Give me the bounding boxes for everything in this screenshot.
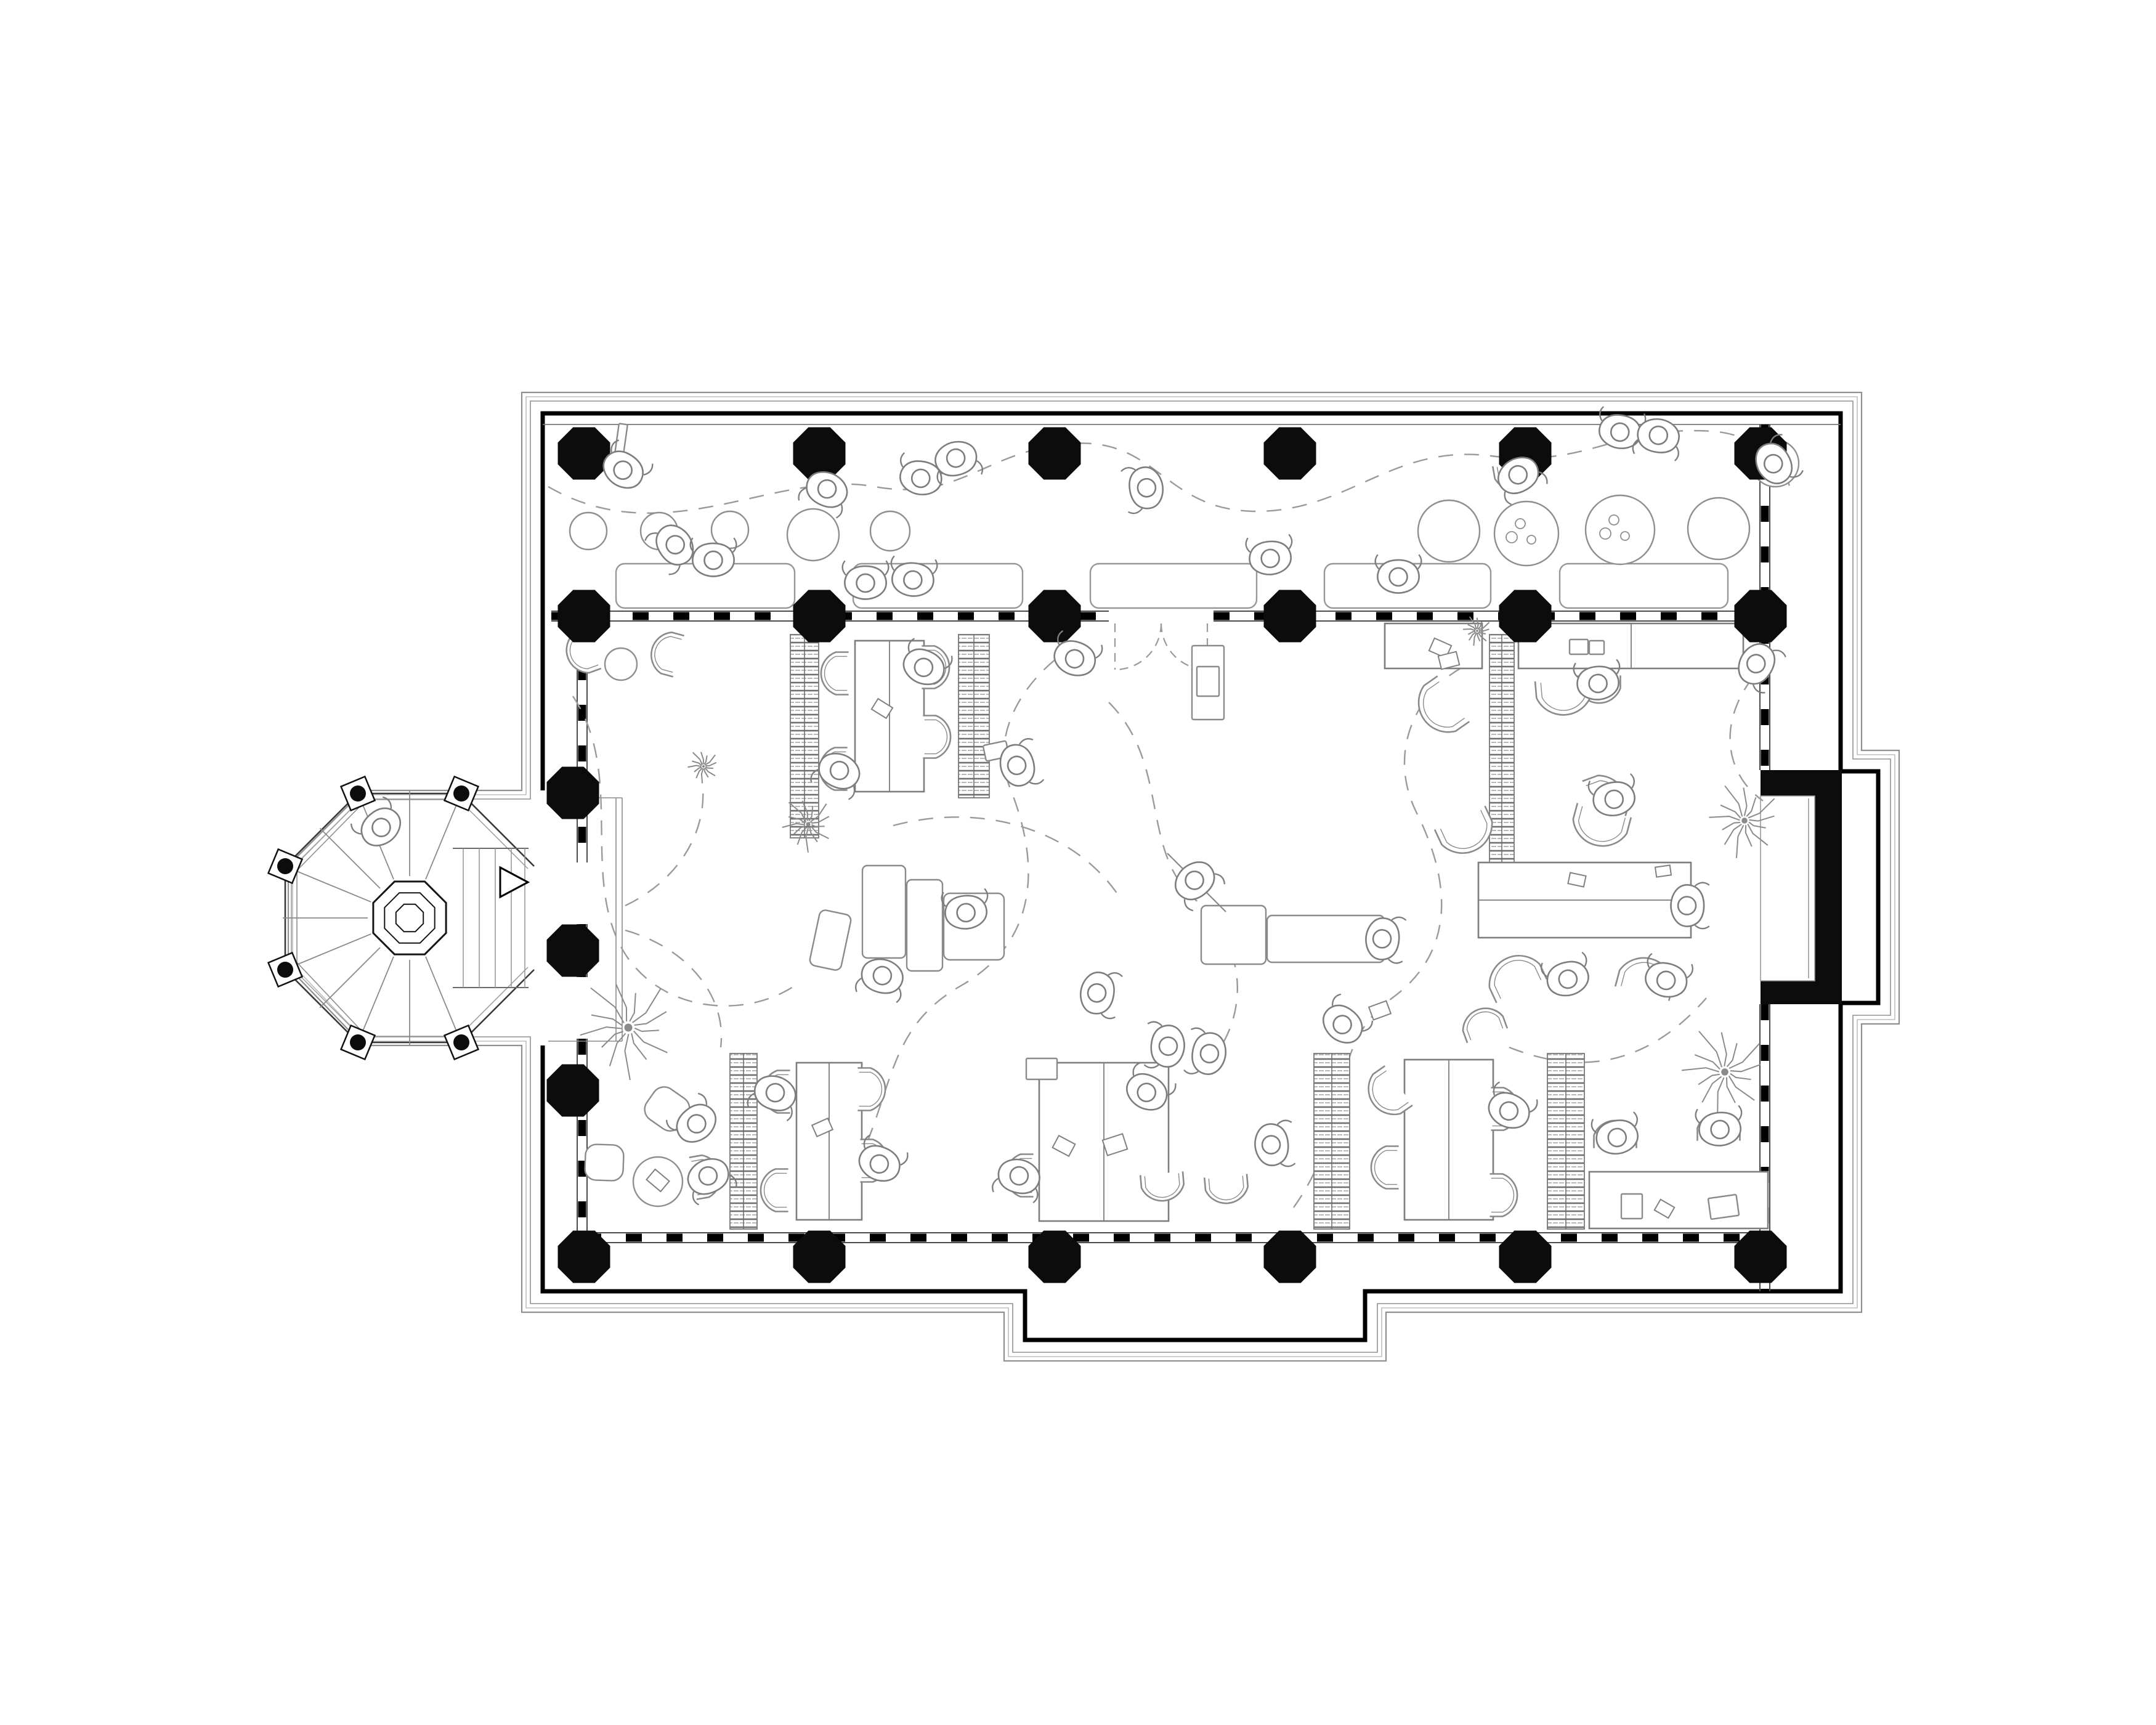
chair-shell [761, 1169, 788, 1212]
furniture [1201, 906, 1266, 964]
person-arm [899, 452, 905, 467]
chair [761, 1169, 788, 1212]
desk [1518, 623, 1743, 668]
stool-outline [787, 509, 839, 561]
person-arm [843, 561, 846, 575]
structural-column [793, 1231, 846, 1283]
person-arm [1530, 1099, 1539, 1113]
chair-shell [1371, 1147, 1399, 1189]
stool-outline [1688, 498, 1749, 559]
person-arm [1183, 1069, 1198, 1074]
structural-column [793, 590, 846, 643]
desk [1404, 1060, 1493, 1220]
plant-center [1721, 1068, 1728, 1076]
stair-tread [426, 957, 458, 1035]
circulation-path [625, 782, 703, 906]
coffee-table [1586, 495, 1655, 564]
plant-center [1476, 630, 1478, 632]
stair-tread [293, 934, 371, 967]
plant-leaf [1743, 788, 1746, 816]
person-arm [1101, 1013, 1116, 1019]
furniture [809, 909, 852, 972]
plant-leaf [1682, 1068, 1719, 1071]
person-arm [1738, 1105, 1742, 1120]
person-figure [854, 954, 909, 1004]
plant-leaf [1722, 822, 1740, 830]
chair [1371, 1147, 1399, 1189]
furniture [1570, 639, 1588, 654]
person-head [956, 903, 975, 922]
chair-shell [1489, 1174, 1517, 1217]
stair-tread [361, 957, 394, 1035]
structural-column [547, 925, 599, 977]
person-figure [1183, 1027, 1229, 1079]
person-arm [1019, 737, 1034, 744]
stool [570, 513, 607, 550]
furniture [585, 1144, 624, 1181]
stool [870, 511, 910, 551]
stool [787, 509, 839, 561]
person-arm [1121, 466, 1135, 472]
stool-outline [605, 648, 637, 680]
structural-column [1735, 590, 1787, 643]
furniture [1708, 1195, 1739, 1219]
person-figure [1376, 554, 1422, 593]
person-arm [1695, 925, 1709, 928]
coffee-table [1494, 501, 1558, 566]
structural-column [547, 1065, 599, 1117]
stool [1418, 500, 1480, 562]
lounge-chair [1408, 676, 1469, 742]
desk [796, 1063, 862, 1220]
structural-column [1029, 1231, 1081, 1283]
person-arm [1539, 470, 1549, 484]
plant-center [625, 1024, 633, 1032]
stool-outline [570, 513, 607, 550]
structural-column [1029, 428, 1081, 480]
person-arm [1330, 992, 1342, 1005]
person-head [1390, 568, 1408, 586]
stool-outline [1418, 500, 1480, 562]
furniture [862, 866, 906, 958]
plant-leaf [1725, 786, 1742, 817]
structural-column [1029, 590, 1081, 643]
person-arm [1128, 508, 1143, 514]
person-arm [349, 823, 361, 836]
person-arm [697, 1092, 709, 1105]
person-arm [1096, 644, 1104, 659]
person-arm [1632, 1111, 1638, 1126]
chair [821, 652, 849, 695]
furniture [1026, 1058, 1057, 1079]
plant [580, 984, 668, 1080]
structural-column [547, 767, 599, 819]
chair-shell [1481, 947, 1547, 1003]
structural-column [1264, 1231, 1316, 1283]
plant-center [1741, 818, 1748, 824]
person-figure [1253, 1120, 1295, 1169]
person-head [1710, 1120, 1729, 1139]
plant-leaf [704, 755, 707, 764]
desk-item [1369, 1001, 1391, 1020]
person-arm [1288, 534, 1292, 549]
person-figure [1671, 883, 1709, 929]
person-head [1262, 1135, 1281, 1154]
person-head [1159, 1036, 1178, 1055]
person-arm [1191, 1027, 1206, 1033]
plant-leaf [634, 1028, 659, 1031]
person-arm [1695, 883, 1709, 886]
plant-leaf [702, 768, 703, 783]
person-figure [1121, 462, 1166, 514]
chair-shell [647, 628, 684, 676]
plant-leaf [1698, 1074, 1720, 1085]
person-figure [930, 437, 984, 486]
person-figure [1591, 1111, 1642, 1157]
person-figure [1632, 415, 1684, 461]
stool [1688, 498, 1749, 559]
stool-outline [1586, 495, 1655, 564]
circulation-path [1509, 998, 1706, 1062]
circulation-path [573, 696, 795, 1006]
person-arm [1392, 917, 1406, 921]
person-figure [1077, 967, 1122, 1019]
person-figure [1695, 1105, 1745, 1148]
person-arm [1695, 1109, 1700, 1124]
plant-leaf [1727, 1043, 1737, 1066]
plant-leaf [1722, 1033, 1727, 1066]
person-arm [991, 1178, 998, 1193]
desk-item [1655, 865, 1671, 877]
structural-column [1264, 428, 1316, 480]
structural-column [1499, 590, 1552, 643]
desk [1589, 1172, 1768, 1228]
stair-tread [320, 948, 380, 1008]
bookshelf [958, 635, 989, 798]
circulation-path [1730, 678, 1763, 801]
person-arm [1388, 959, 1403, 964]
person-arm [1108, 972, 1123, 977]
floor-plan [0, 0, 2156, 1725]
plant-leaf [692, 761, 702, 765]
plant-leaf [1699, 1031, 1722, 1067]
person-arm [1674, 447, 1679, 461]
plant-leaf [705, 767, 713, 768]
person-head [1588, 674, 1607, 693]
plant-leaf [1727, 1078, 1735, 1103]
person-arm [1277, 1120, 1292, 1124]
person-arm [1751, 684, 1765, 694]
person-arm [1148, 1021, 1162, 1026]
desk-top [1589, 1172, 1768, 1228]
plant-leaf [1709, 816, 1740, 820]
floor-plan-page [0, 0, 2156, 1725]
chair-shell [1408, 676, 1469, 742]
person-arm [1281, 1163, 1295, 1167]
plant-leaf [1695, 1055, 1720, 1069]
furniture [907, 880, 942, 971]
person-head [903, 570, 922, 590]
person-arm [1246, 538, 1250, 553]
bookshelf [1547, 1053, 1584, 1229]
chair [1204, 1174, 1249, 1205]
person-figure [1315, 992, 1374, 1052]
lounge-chair [1481, 947, 1547, 1003]
bookshelf [1489, 635, 1514, 887]
person-head [705, 551, 723, 569]
plant-center [702, 765, 705, 768]
fireplace-niche [1761, 796, 1815, 981]
chair [647, 628, 684, 676]
chair [1489, 1174, 1517, 1217]
plant-leaf [1746, 825, 1752, 846]
bookshelf [1314, 1053, 1350, 1229]
person-arm [901, 1152, 910, 1166]
furniture [1621, 1194, 1642, 1219]
plant-leaf [688, 765, 702, 767]
floor-plan-layers [269, 392, 1899, 1361]
plant-leaf [625, 1034, 630, 1080]
furniture [1589, 641, 1604, 654]
plant-center [806, 822, 811, 827]
person-head [1678, 897, 1696, 915]
person-arm [1629, 773, 1635, 788]
structural-column [558, 590, 610, 643]
bench [1560, 564, 1728, 608]
bookshelf [730, 1053, 757, 1229]
chair [923, 716, 950, 758]
plant [688, 752, 716, 784]
plant-leaf [1746, 797, 1756, 816]
bench [1090, 564, 1257, 608]
chair [1458, 1002, 1507, 1043]
direction-arrow [500, 867, 528, 897]
plant-leaf [616, 984, 626, 1021]
person-arm [854, 978, 861, 992]
plant-leaf [610, 1033, 626, 1066]
plant-leaf [1730, 1074, 1751, 1080]
stool [605, 648, 637, 680]
person-arm [1215, 872, 1226, 885]
furniture [1197, 667, 1219, 696]
chair-shell [1458, 1002, 1507, 1043]
circulation-path [1109, 702, 1238, 1072]
door-swing [1115, 623, 1161, 670]
chair-shell [821, 652, 849, 695]
person-arm [1182, 899, 1194, 912]
person-arm [644, 463, 655, 477]
structural-column [1499, 1231, 1552, 1283]
plant-leaf [1737, 825, 1743, 858]
person-arm [382, 795, 394, 808]
structural-column [1735, 1231, 1787, 1283]
person-arm [1687, 964, 1694, 979]
plant [1682, 1031, 1761, 1118]
person-head [857, 574, 875, 592]
structural-column [558, 1231, 610, 1283]
person-figure [1540, 952, 1594, 1001]
person-head [1372, 929, 1392, 948]
structural-column [558, 428, 610, 480]
chair-shell [923, 716, 950, 758]
person-arm [1591, 1119, 1596, 1134]
stool-outline [1494, 501, 1558, 566]
structural-column [1264, 590, 1316, 643]
plant-leaf [591, 1015, 622, 1025]
person-arm [977, 460, 984, 475]
plant-leaf [630, 993, 636, 1021]
stair-tread [293, 869, 371, 902]
stair-tread [426, 801, 458, 879]
glazed-wall [585, 1233, 1761, 1243]
person-head [1260, 549, 1279, 568]
stool-outline [870, 511, 910, 551]
